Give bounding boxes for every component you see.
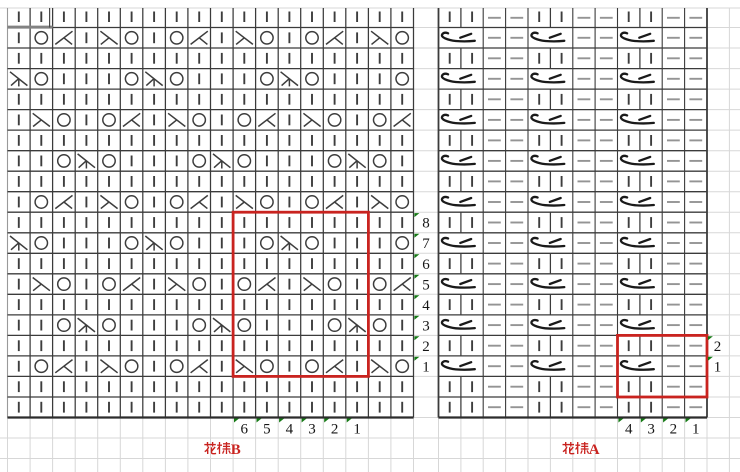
svg-text:4: 4 — [286, 422, 294, 438]
svg-text:1: 1 — [353, 422, 361, 438]
svg-text:2: 2 — [422, 339, 430, 355]
svg-text:3: 3 — [647, 422, 655, 438]
svg-text:6: 6 — [241, 422, 249, 438]
svg-text:4: 4 — [625, 422, 633, 438]
svg-text:2: 2 — [331, 422, 339, 438]
svg-text:A: A — [589, 442, 600, 458]
svg-text:6: 6 — [422, 257, 430, 273]
svg-text:1: 1 — [714, 359, 722, 375]
svg-text:3: 3 — [422, 318, 430, 334]
svg-text:4: 4 — [422, 298, 430, 314]
svg-text:1: 1 — [692, 422, 700, 438]
svg-text:8: 8 — [422, 216, 430, 232]
svg-text:2: 2 — [714, 339, 722, 355]
svg-text:5: 5 — [422, 277, 430, 293]
svg-text:1: 1 — [422, 359, 430, 375]
svg-text:5: 5 — [263, 422, 271, 438]
svg-text:B: B — [231, 442, 241, 458]
svg-text:3: 3 — [308, 422, 316, 438]
svg-text:7: 7 — [422, 236, 430, 252]
svg-text:2: 2 — [670, 422, 678, 438]
